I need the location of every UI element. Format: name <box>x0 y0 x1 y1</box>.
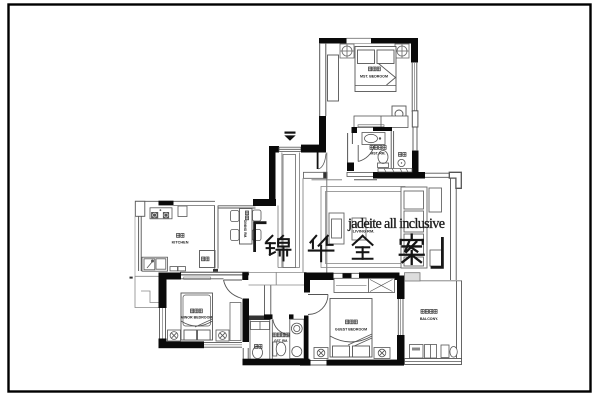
svg-text:MINOR BEDROOM: MINOR BEDROOM <box>181 316 213 320</box>
svg-text:KITCHEN: KITCHEN <box>172 241 189 245</box>
svg-text:MST. BEDROOM: MST. BEDROOM <box>360 75 388 79</box>
svg-text:GST. RM.: GST. RM. <box>274 339 288 343</box>
svg-text:MST. RM.: MST. RM. <box>371 152 386 156</box>
svg-text:DINING RM.: DINING RM. <box>243 220 247 238</box>
svg-text:BALCONY.: BALCONY. <box>420 317 438 321</box>
svg-text:GUEST BEDROOM: GUEST BEDROOM <box>335 328 367 332</box>
svg-text:jadeite all inclusive: jadeite all inclusive <box>347 216 445 232</box>
